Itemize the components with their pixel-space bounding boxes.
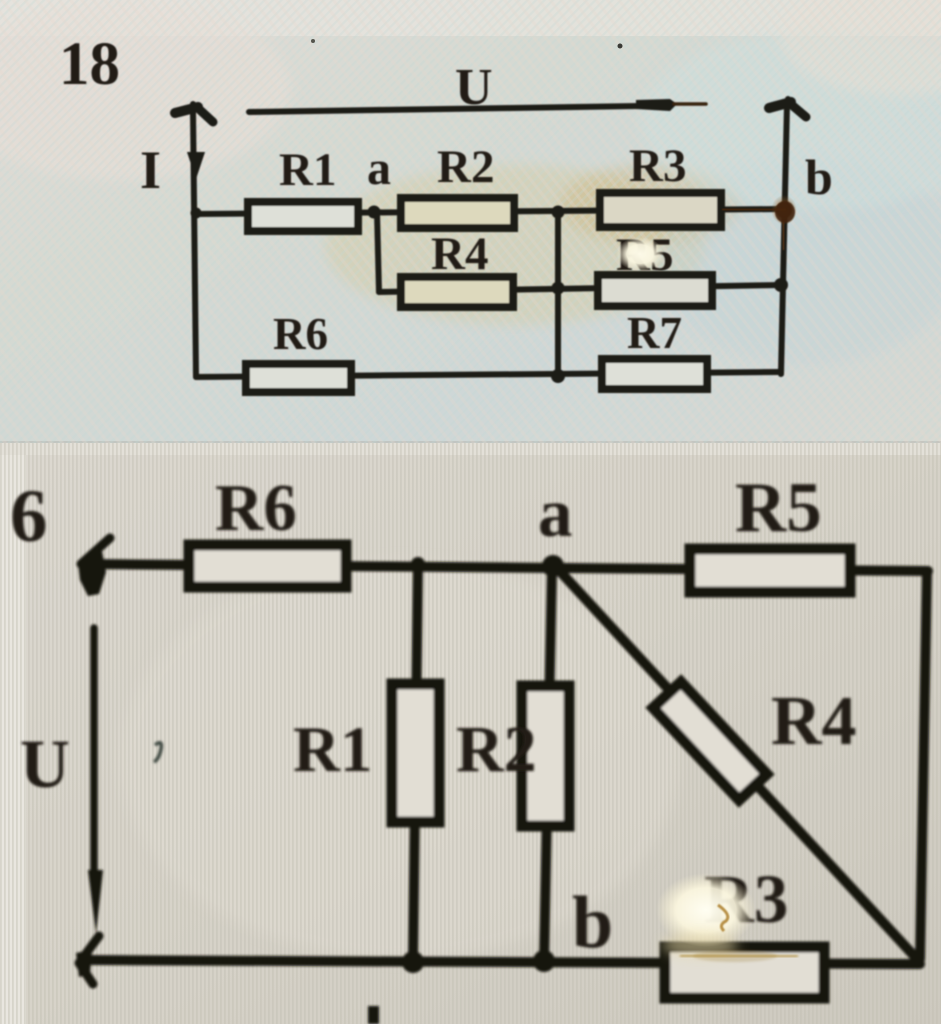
svg-text:U: U — [455, 59, 493, 116]
svg-text:18: 18 — [59, 31, 120, 98]
svg-text:R1: R1 — [293, 714, 372, 786]
svg-text:R6: R6 — [215, 471, 297, 545]
svg-text:a: a — [367, 142, 391, 195]
svg-text:U: U — [20, 726, 70, 802]
svg-text:R1: R1 — [279, 144, 336, 196]
svg-text:R6: R6 — [273, 309, 328, 359]
svg-text:R4: R4 — [771, 683, 857, 760]
svg-text:b: b — [572, 882, 613, 964]
svg-text:b: b — [805, 149, 833, 205]
svg-text:6: 6 — [10, 475, 48, 558]
svg-text:R7: R7 — [627, 308, 682, 358]
svg-text:R2: R2 — [456, 713, 537, 786]
svg-text:R4: R4 — [431, 228, 488, 280]
svg-text:I: I — [140, 140, 161, 200]
svg-text:R2: R2 — [437, 141, 494, 193]
svg-text:a: a — [538, 475, 573, 551]
svg-text:R3: R3 — [629, 140, 686, 192]
svg-text:R5: R5 — [735, 469, 822, 547]
